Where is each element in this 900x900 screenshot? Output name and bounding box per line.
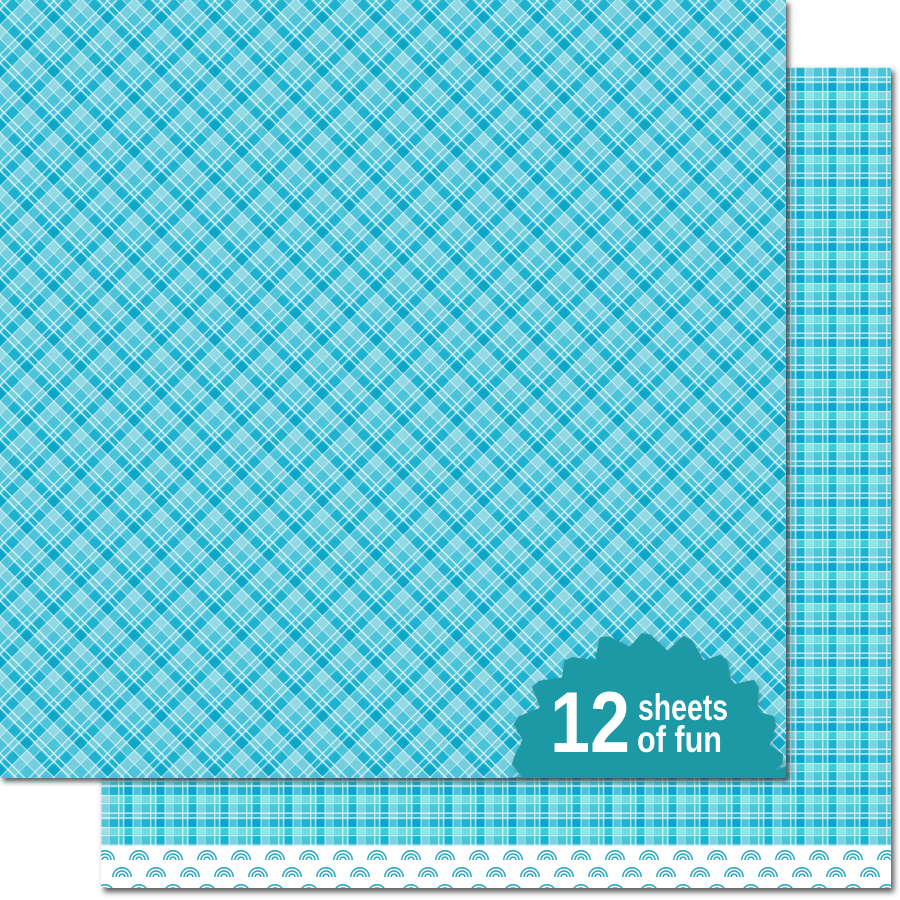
- svg-text:of fun: of fun: [637, 719, 722, 760]
- svg-text:12: 12: [550, 675, 630, 771]
